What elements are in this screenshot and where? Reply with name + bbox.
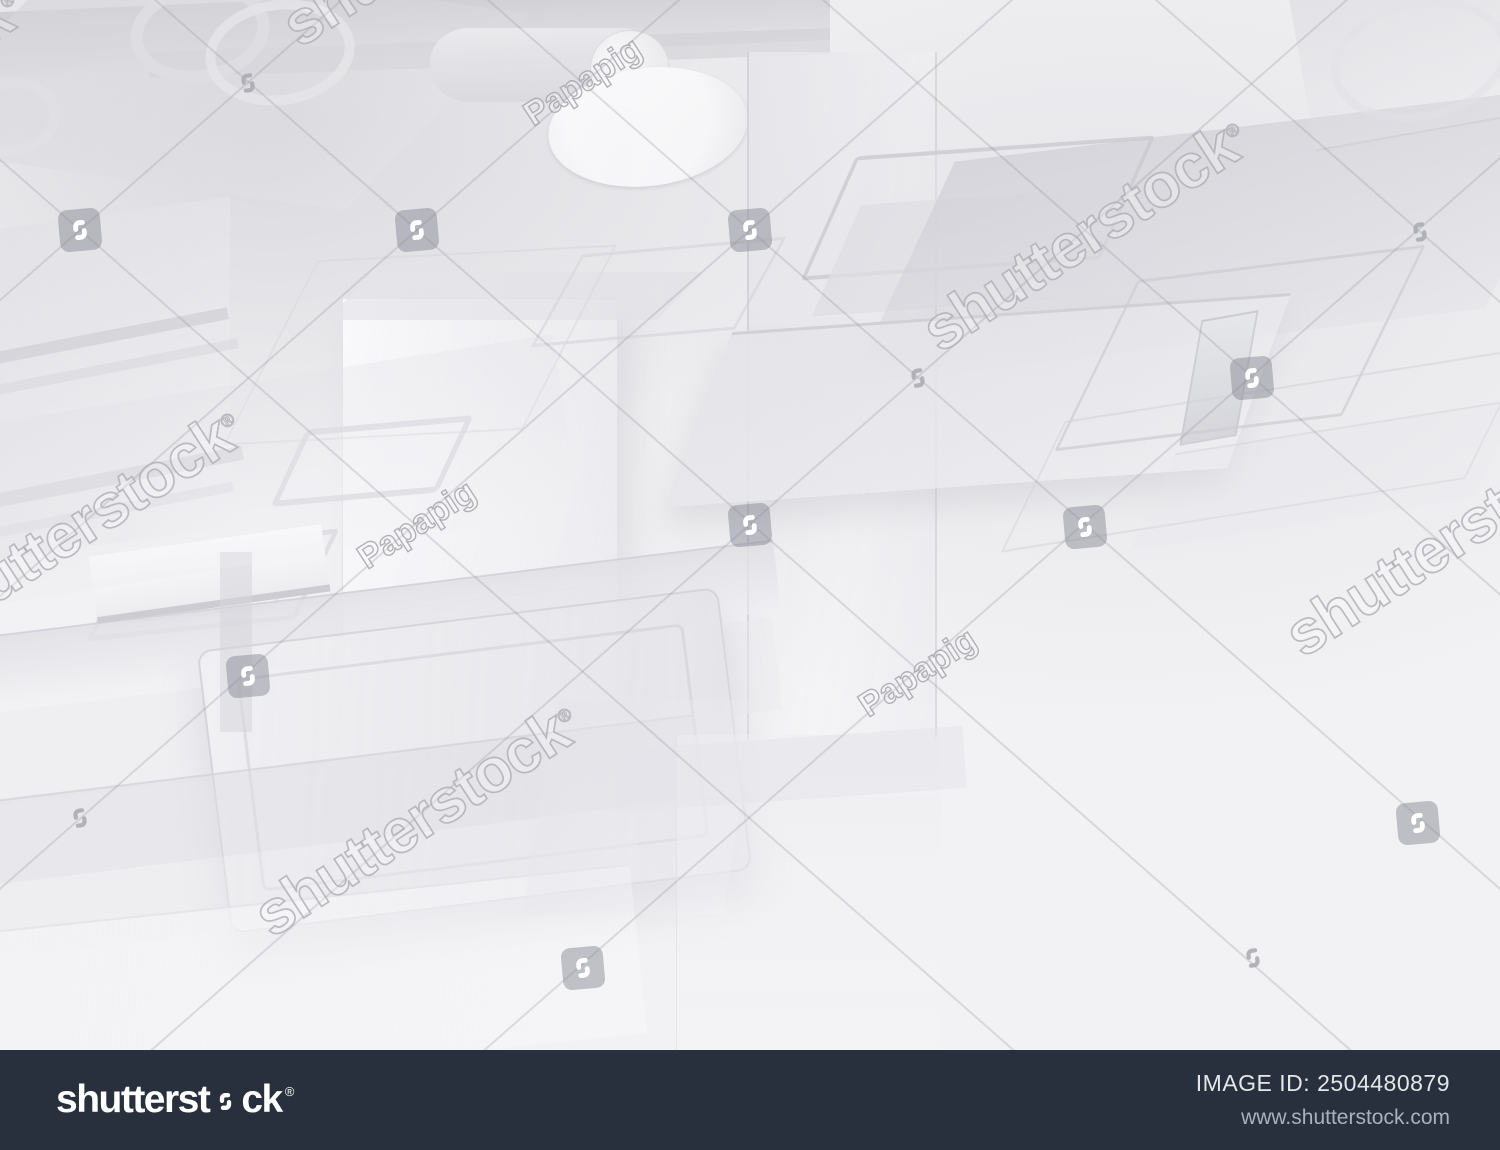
- watermark-brand-text: shutterstock®: [0, 0, 35, 236]
- watermark-brand-text: shutterstock®: [242, 689, 593, 951]
- image-id: IMAGE ID: 2504480879: [1196, 1070, 1450, 1097]
- shutterstock-badge-icon: [1395, 800, 1441, 846]
- watermark-brand-text: shutterstock®: [1273, 409, 1500, 671]
- watermark-contributor-text: Papapig: [351, 473, 483, 578]
- shutterstock-s-glyph-icon: [61, 799, 99, 837]
- shutterstock-s-icon: [211, 1087, 240, 1116]
- watermark-lattice-line: [0, 0, 1057, 1050]
- shutterstock-badge-icon: [727, 207, 773, 253]
- shutterstock-logo: shutterst ck ®: [56, 1078, 293, 1122]
- shutterstock-badge-icon: [57, 207, 103, 253]
- watermark-lattice-line: [0, 0, 1057, 1050]
- registered-mark: ®: [285, 1084, 293, 1099]
- shutterstock-badge-icon: [394, 207, 440, 253]
- logo-text-prefix: shutterst: [56, 1078, 209, 1122]
- shutterstock-s-glyph-icon: [1234, 939, 1272, 977]
- watermark-footer-bar: shutterst ck ® IMAGE ID: 2504480879 www.…: [0, 1050, 1500, 1150]
- watermark-brand-text: shutterstock®: [270, 0, 621, 61]
- shutterstock-badge-icon: [225, 653, 271, 699]
- shutterstock-badge-icon: [1062, 504, 1108, 550]
- watermark-layer: shutterstock®shutterstock®shutterstock®s…: [0, 0, 1500, 1050]
- watermark-lattice-line: [441, 0, 1500, 1050]
- shutterstock-s-glyph-icon: [899, 359, 937, 397]
- watermark-brand-text: shutterstock®: [0, 394, 255, 656]
- shutterstock-s-glyph-icon: [1401, 213, 1439, 251]
- shutterstock-badge-icon: [1229, 355, 1275, 401]
- shutterstock-badge-icon: [727, 502, 773, 548]
- image-meta: IMAGE ID: 2504480879 www.shutterstock.co…: [1196, 1070, 1450, 1130]
- stock-image-preview: shutterstock®shutterstock®shutterstock®s…: [0, 0, 1500, 1150]
- watermark-brand-text: shutterstock®: [910, 104, 1261, 366]
- watermark-contributor-text: Papapig: [517, 30, 649, 135]
- shutterstock-s-glyph-icon: [229, 64, 267, 102]
- shutterstock-badge-icon: [560, 945, 606, 991]
- website-url: www.shutterstock.com: [1196, 1106, 1450, 1130]
- watermark-lattice-line: [441, 0, 1500, 1050]
- logo-text-suffix: ck: [241, 1078, 281, 1122]
